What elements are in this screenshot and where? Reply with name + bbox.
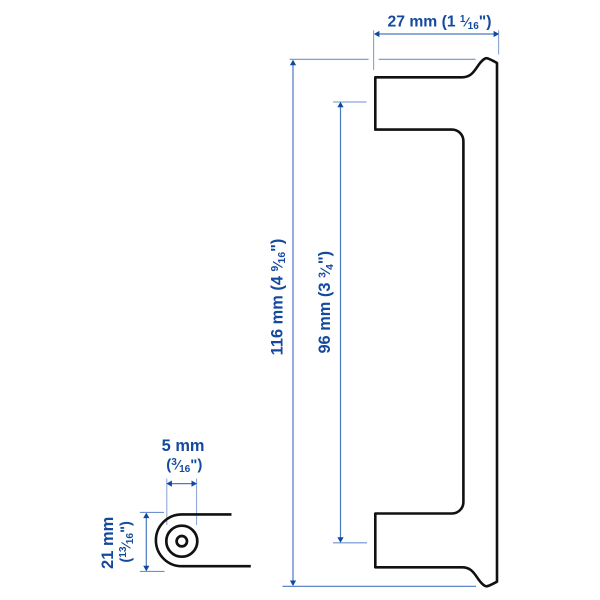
svg-text:21 mm: 21 mm xyxy=(99,517,117,569)
svg-text:5 mm: 5 mm xyxy=(162,437,205,455)
